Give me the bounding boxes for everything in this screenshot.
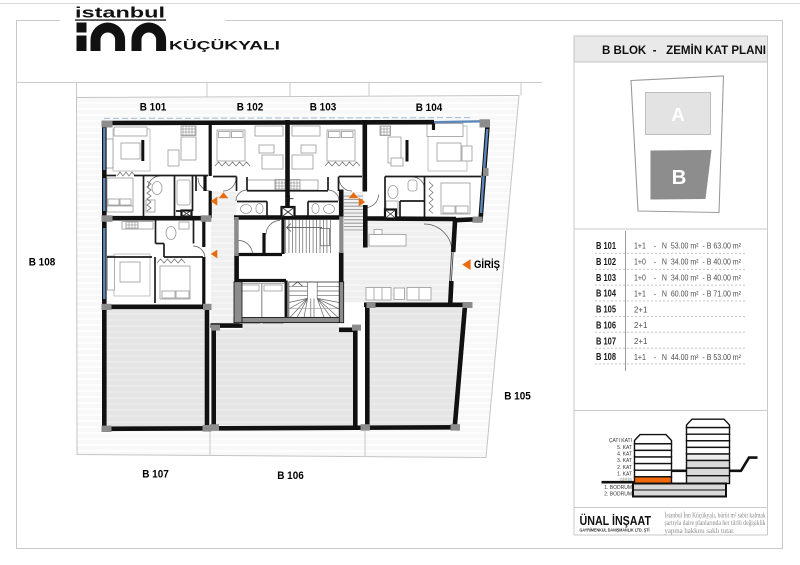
svg-text:A: A xyxy=(671,104,684,125)
svg-text:istanbul: istanbul xyxy=(75,6,165,22)
svg-text:B 101: B 101 xyxy=(596,241,616,252)
svg-text:B 104: B 104 xyxy=(596,289,616,300)
svg-text:GİRİŞ: GİRİŞ xyxy=(474,258,500,271)
svg-text:KÜÇÜKYALI: KÜÇÜKYALI xyxy=(169,38,280,53)
svg-text:ÜNAL İNŞAAT: ÜNAL İNŞAAT xyxy=(580,513,652,528)
svg-text:2+1: 2+1 xyxy=(634,337,647,346)
svg-text:1+0 - N 34.00 m² - B 40: 1+0 - N 34.00 m² - B 40.00 m² xyxy=(634,258,741,267)
svg-text:2+1: 2+1 xyxy=(634,305,647,314)
svg-text:B 101: B 101 xyxy=(140,102,167,114)
svg-text:4. KAT: 4. KAT xyxy=(617,452,632,458)
svg-text:B 106: B 106 xyxy=(596,320,616,331)
svg-text:B 107: B 107 xyxy=(596,336,616,347)
svg-text:ÇATI KATI: ÇATI KATI xyxy=(609,438,632,444)
svg-text:B 105: B 105 xyxy=(504,391,531,403)
svg-text:B: B xyxy=(672,166,687,189)
svg-text:B 104: B 104 xyxy=(416,102,443,114)
svg-text:B 105: B 105 xyxy=(596,305,616,316)
svg-text:2+1: 2+1 xyxy=(634,321,647,330)
svg-text:1. BODRUM: 1. BODRUM xyxy=(604,485,632,491)
svg-text:1+0 - N 34.00 m² - B 40: 1+0 - N 34.00 m² - B 40.00 m² xyxy=(634,274,741,283)
svg-text:1+1 - N 44.00 m² - B 53: 1+1 - N 44.00 m² - B 53.00 m² xyxy=(634,353,741,362)
svg-text:1+1 - N 53.00 m² - B 63: 1+1 - N 53.00 m² - B 63.00 m² xyxy=(634,242,741,251)
svg-text:yapma hakkını saklı tutar.: yapma hakkını saklı tutar. xyxy=(665,528,736,535)
svg-text:5. KAT: 5. KAT xyxy=(617,445,632,451)
svg-text:B BLOK - ZEMİN KAT PLANI: B BLOK - ZEMİN KAT PLANI xyxy=(602,42,766,57)
svg-text:B 108: B 108 xyxy=(596,352,616,363)
svg-text:GAYRİMENKUL DANIŞMANLIK LTD. Ş: GAYRİMENKUL DANIŞMANLIK LTD. ŞTİ xyxy=(580,527,650,533)
svg-text:GİRİŞ: GİRİŞ xyxy=(619,476,632,482)
svg-text:B 103: B 103 xyxy=(310,102,337,114)
svg-text:B 102: B 102 xyxy=(237,102,264,114)
svg-text:B 107: B 107 xyxy=(142,469,169,481)
svg-text:B 103: B 103 xyxy=(596,273,616,284)
svg-text:B 102: B 102 xyxy=(596,257,616,268)
svg-text:3. KAT: 3. KAT xyxy=(617,458,632,464)
svg-text:İstanbul İnn Küçükyalı, bürüt: İstanbul İnn Küçükyalı, bürüt m² sabit k… xyxy=(665,513,766,520)
svg-text:B 108: B 108 xyxy=(29,257,56,269)
svg-text:2. KAT: 2. KAT xyxy=(617,465,632,471)
svg-text:1+1 - N 60.00 m² - B 71: 1+1 - N 60.00 m² - B 71.00 m² xyxy=(634,289,741,298)
svg-text:şartıyla daire planlarında her: şartıyla daire planlarında her türlü değ… xyxy=(665,520,767,527)
svg-text:B 106: B 106 xyxy=(277,470,304,482)
svg-text:2. BODRUM: 2. BODRUM xyxy=(604,491,632,497)
